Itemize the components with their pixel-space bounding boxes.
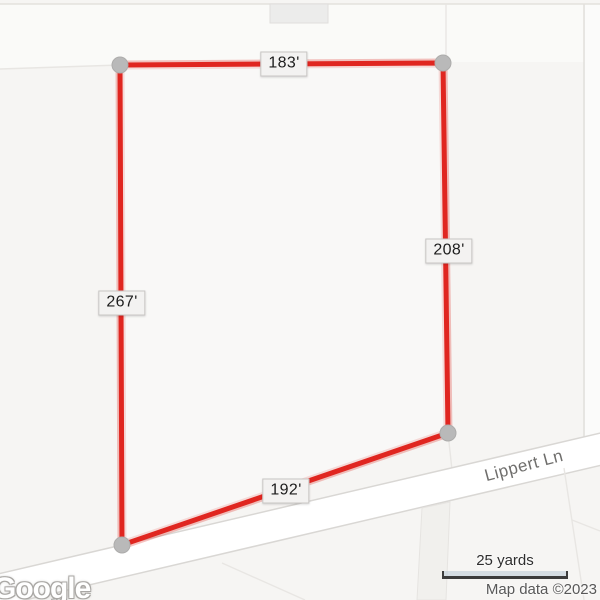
measurement-label-right: 208': [425, 239, 472, 264]
map-canvas[interactable]: 183' 208' 267' 192' Lippert Ln Google 25…: [0, 0, 600, 600]
parcel-area-east: [585, 4, 600, 454]
measurement-label-top: 183': [260, 52, 307, 77]
map-layer: [0, 0, 600, 600]
measurement-label-bottom: 192': [262, 479, 309, 504]
driveway: [417, 502, 450, 600]
scale-label: 25 yards: [442, 552, 568, 569]
vertex-handle-sw[interactable]: [114, 537, 130, 553]
map-data-attribution: Map data ©2023: [486, 581, 597, 598]
scale-widget: 25 yards: [442, 552, 568, 579]
google-logo[interactable]: Google: [0, 572, 90, 600]
vertex-handle-se[interactable]: [440, 425, 456, 441]
scale-bar: [442, 571, 568, 579]
building-footprint: [270, 4, 328, 23]
measurement-label-left: 267': [98, 291, 145, 316]
vertex-handle-ne[interactable]: [435, 55, 451, 71]
vertex-handle-nw[interactable]: [112, 57, 128, 73]
